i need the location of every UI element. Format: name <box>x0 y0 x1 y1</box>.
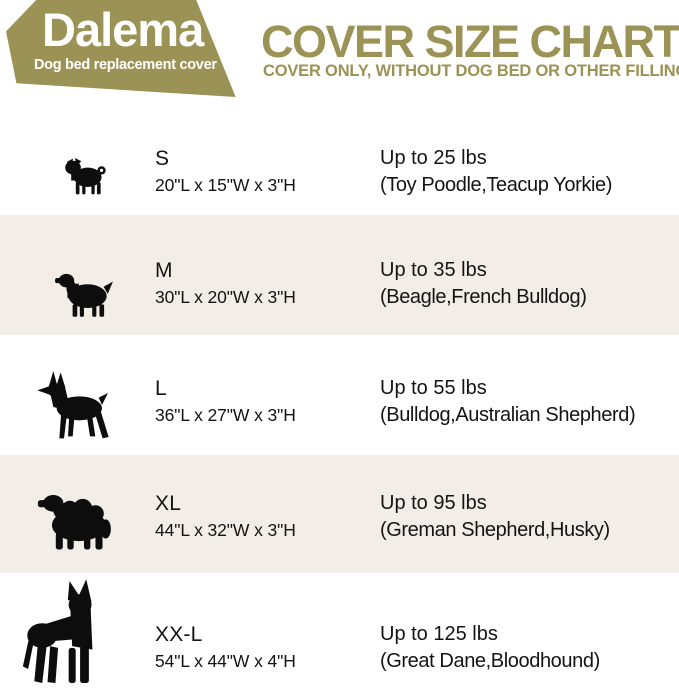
weight-limit: Up to 35 lbs <box>380 257 586 284</box>
size-info: XL 44"L x 32"W x 3"H <box>155 490 296 544</box>
size-name: S <box>155 145 296 172</box>
weight-limit: Up to 125 lbs <box>380 621 600 648</box>
weight-limit: Up to 55 lbs <box>380 375 635 402</box>
size-name: M <box>155 257 296 284</box>
size-name: L <box>155 375 296 402</box>
size-info: M 30"L x 20"W x 3"H <box>155 257 296 311</box>
size-row-xxl: XX-L 54"L x 44"W x 4"H Up to 125 lbs (Gr… <box>0 573 679 691</box>
weight-info: Up to 125 lbs (Great Dane,Bloodhound) <box>380 621 600 675</box>
cocker-spaniel-icon <box>54 267 116 319</box>
weight-info: Up to 95 lbs (Greman Shepherd,Husky) <box>380 490 610 544</box>
example-breeds: (Greman Shepherd,Husky) <box>380 517 610 544</box>
page-subtitle: COVER ONLY, WITHOUT DOG BED OR OTHER FIL… <box>263 62 679 81</box>
size-row-m: M 30"L x 20"W x 3"H Up to 35 lbs (Beagle… <box>0 215 679 335</box>
brand-tagline: Dog bed replacement cover <box>34 57 217 73</box>
brand-name: Dalema <box>42 4 203 56</box>
size-chart-page: Dalema Dog bed replacement cover COVER S… <box>0 0 679 691</box>
weight-info: Up to 25 lbs (Toy Poodle,Teacup Yorkie) <box>380 145 612 199</box>
example-breeds: (Bulldog,Australian Shepherd) <box>380 402 635 429</box>
size-row-s: S 20"L x 15"W x 3"H Up to 25 lbs (Toy Po… <box>0 98 679 215</box>
weight-info: Up to 55 lbs (Bulldog,Australian Shepher… <box>380 375 635 429</box>
page-title: COVER SIZE CHART <box>261 16 679 68</box>
example-breeds: (Great Dane,Bloodhound) <box>380 648 600 675</box>
example-breeds: (Toy Poodle,Teacup Yorkie) <box>380 172 612 199</box>
brand-logo: Dalema Dog bed replacement cover <box>6 0 238 98</box>
great-dane-icon <box>22 574 110 690</box>
size-dimensions: 54"L x 44"W x 4"H <box>155 648 296 675</box>
size-dimensions: 20"L x 15"W x 3"H <box>155 172 296 199</box>
size-row-l: L 36"L x 27"W x 3"H Up to 55 lbs (Bulldo… <box>0 335 679 455</box>
weight-limit: Up to 25 lbs <box>380 145 612 172</box>
mountain-dog-icon <box>34 488 116 552</box>
size-dimensions: 44"L x 32"W x 3"H <box>155 517 296 544</box>
weight-info: Up to 35 lbs (Beagle,French Bulldog) <box>380 257 586 311</box>
size-dimensions: 36"L x 27"W x 3"H <box>155 402 296 429</box>
example-breeds: (Beagle,French Bulldog) <box>380 284 586 311</box>
size-row-xl: XL 44"L x 32"W x 3"H Up to 95 lbs (Grema… <box>0 455 679 573</box>
pug-icon <box>62 152 108 198</box>
size-info: S 20"L x 15"W x 3"H <box>155 145 296 199</box>
weight-limit: Up to 95 lbs <box>380 490 610 517</box>
size-info: XX-L 54"L x 44"W x 4"H <box>155 621 296 675</box>
size-name: XL <box>155 490 296 517</box>
size-info: L 36"L x 27"W x 3"H <box>155 375 296 429</box>
doberman-icon <box>34 369 114 443</box>
size-dimensions: 30"L x 20"W x 3"H <box>155 284 296 311</box>
size-name: XX-L <box>155 621 296 648</box>
